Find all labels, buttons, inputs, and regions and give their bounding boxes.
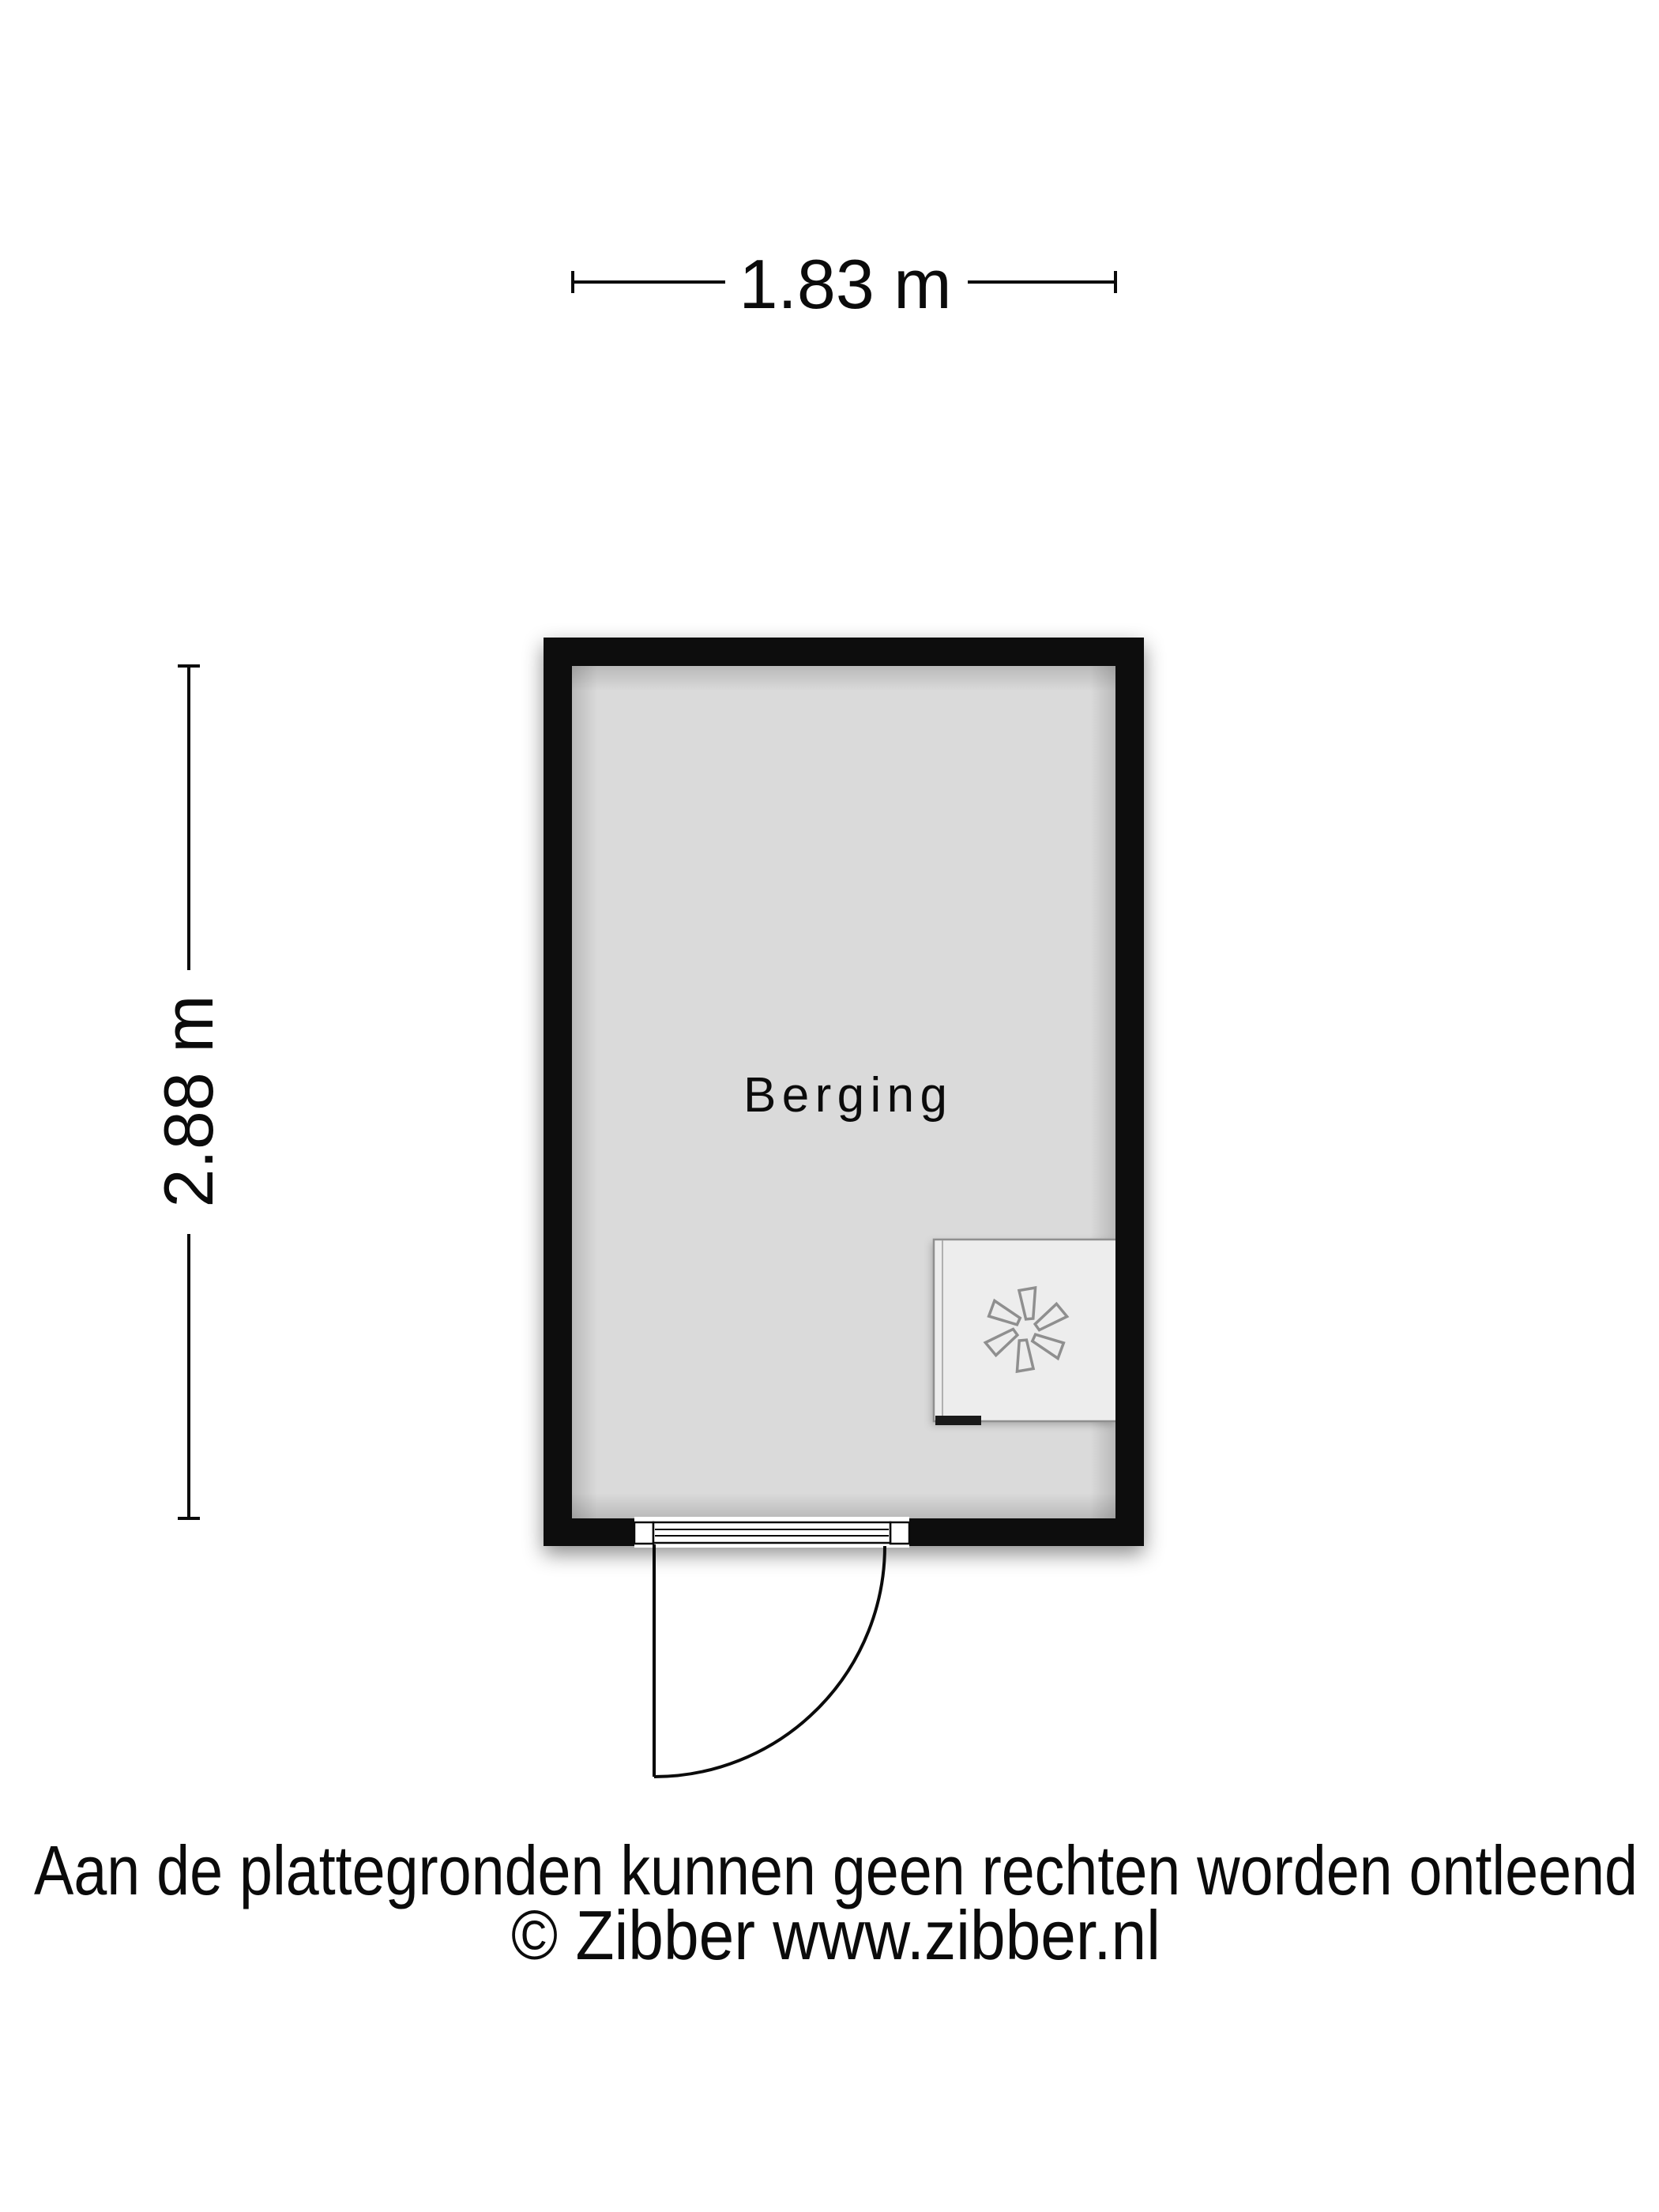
footer-copyright: © Zibber www.zibber.nl bbox=[511, 1896, 1161, 1974]
floor-shade-left bbox=[572, 666, 597, 1518]
fixture-box bbox=[933, 1239, 1115, 1422]
floor-shade-top bbox=[572, 666, 1115, 691]
door-jamb-left bbox=[634, 1522, 653, 1544]
fixture bbox=[933, 1239, 1115, 1425]
footer: Aan de plattegronden kunnen geen rechten… bbox=[34, 1831, 1638, 1974]
floor-shade-bottom bbox=[572, 1493, 1115, 1518]
door-swing-arc bbox=[654, 1546, 885, 1777]
floorplan-canvas: 1.83 m 2.88 m bbox=[0, 0, 1659, 2212]
door bbox=[634, 1517, 909, 1777]
width-dimension-label: 1.83 m bbox=[739, 245, 951, 323]
fixture-bar bbox=[935, 1416, 981, 1425]
height-dimension-label: 2.88 m bbox=[149, 995, 228, 1207]
door-jamb-right bbox=[890, 1522, 909, 1544]
height-dimension: 2.88 m bbox=[149, 666, 228, 1518]
width-dimension: 1.83 m bbox=[573, 245, 1115, 323]
door-threshold bbox=[653, 1522, 890, 1543]
